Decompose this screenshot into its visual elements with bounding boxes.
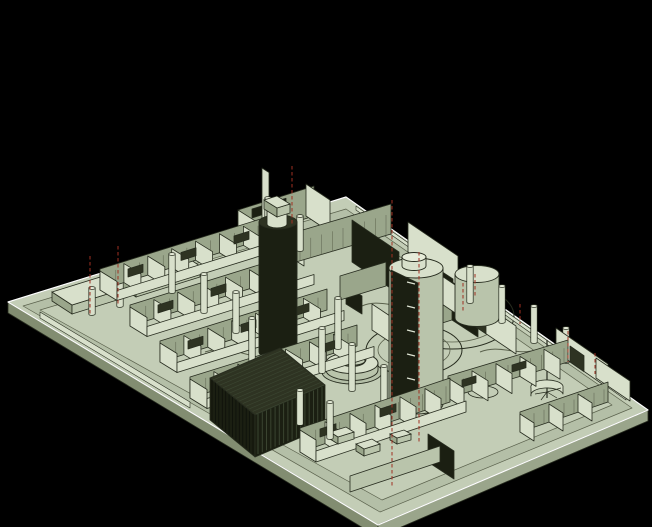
column (349, 344, 355, 391)
column (297, 215, 303, 218)
column (381, 365, 387, 368)
column (327, 402, 333, 439)
column (297, 389, 303, 392)
column (249, 317, 255, 320)
column (319, 327, 325, 330)
column (563, 327, 569, 330)
column (233, 291, 239, 294)
column (297, 216, 303, 251)
viewport-3d[interactable] (0, 0, 652, 527)
axonometric-building-model (0, 0, 652, 527)
column (169, 254, 175, 293)
column (169, 253, 175, 256)
column (319, 328, 325, 373)
column (531, 305, 537, 308)
column (349, 343, 355, 346)
column (297, 390, 303, 425)
central-shaft-tower (259, 222, 297, 359)
round-room-cylinder (455, 266, 499, 283)
column (499, 285, 505, 288)
model-canvas (0, 0, 652, 527)
column (201, 273, 207, 276)
column (499, 286, 505, 323)
column (467, 266, 473, 303)
column (335, 298, 341, 349)
column (467, 265, 473, 268)
column (335, 297, 341, 300)
column (531, 306, 537, 343)
column (201, 274, 207, 313)
column (327, 401, 333, 404)
column (249, 318, 255, 361)
service-tower-cap (402, 253, 426, 262)
column (233, 292, 239, 333)
